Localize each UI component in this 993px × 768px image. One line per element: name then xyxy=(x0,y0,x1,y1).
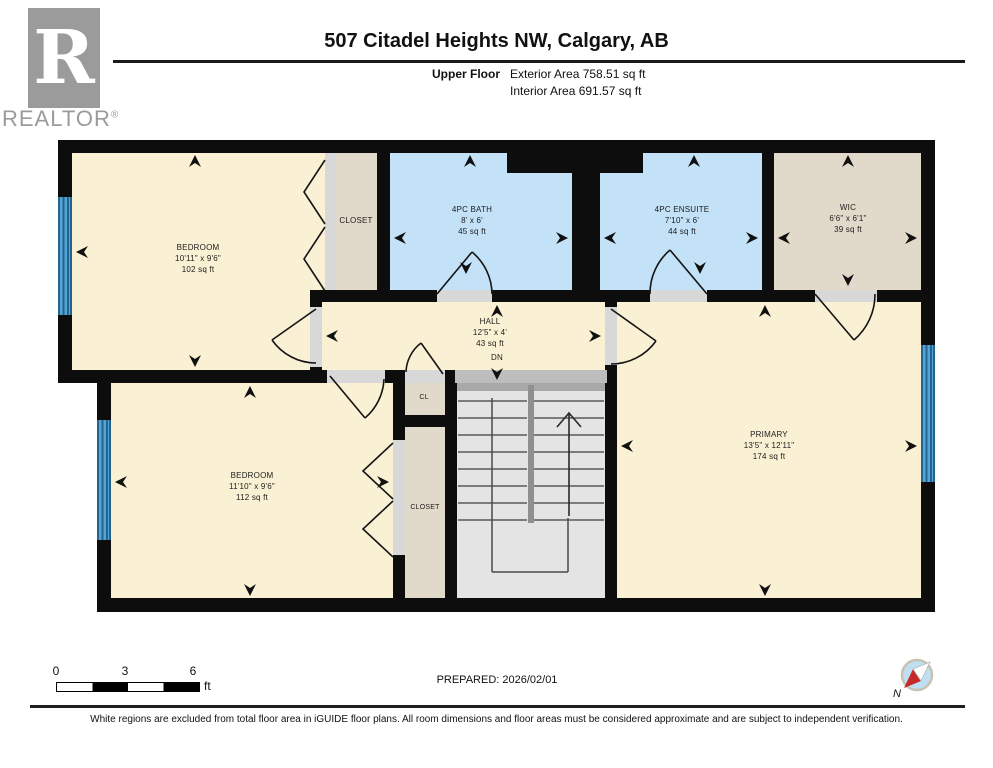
stair-edge-strip xyxy=(457,383,605,391)
room-label-wic: WIC 6'6" x 6'1" 39 sq ft xyxy=(788,202,908,235)
floor-label: Upper Floor xyxy=(330,67,500,81)
room-name: BEDROOM xyxy=(192,470,312,481)
scale-unit: ft xyxy=(204,679,211,693)
room-name: CL xyxy=(404,392,444,403)
room-name: 4PC ENSUITE xyxy=(622,204,742,215)
room-dims: 6'6" x 6'1" xyxy=(788,213,908,224)
compass-icon xyxy=(899,657,935,693)
room-area: 112 sq ft xyxy=(192,492,312,503)
room-label-ensuite: 4PC ENSUITE 7'10" x 6' 44 sq ft xyxy=(622,204,742,237)
room-area: 102 sq ft xyxy=(138,264,258,275)
exterior-area: Exterior Area 758.51 sq ft xyxy=(510,67,645,81)
realtor-logo: R xyxy=(28,8,100,108)
room-label-closet-2: CLOSET xyxy=(385,502,465,513)
room-name: PRIMARY xyxy=(709,429,829,440)
bedroom2-door-opening xyxy=(327,370,385,383)
stairs-opening xyxy=(455,370,607,383)
dn-text: DN xyxy=(477,352,517,363)
scale-bar xyxy=(56,682,200,692)
window-bedroom-1 xyxy=(58,197,72,315)
room-name: BEDROOM xyxy=(138,242,258,253)
room-label-bedroom-1: BEDROOM 10'11" x 9'6" 102 sq ft xyxy=(138,242,258,275)
room-dims: 12'5" x 4' xyxy=(430,327,550,338)
room-dims: 7'10" x 6' xyxy=(622,215,742,226)
realtor-wordmark-text: REALTOR xyxy=(2,106,111,131)
room-label-hall: HALL 12'5" x 4' 43 sq ft xyxy=(430,316,550,349)
room-area: 44 sq ft xyxy=(622,226,742,237)
floor-plan-page: R REALTOR® 507 Citadel Heights NW, Calga… xyxy=(0,0,993,768)
wall-stairs-left xyxy=(445,383,457,598)
scale-tick-6: 6 xyxy=(186,664,200,678)
scale-tick-0: 0 xyxy=(49,664,63,678)
room-label-bath: 4PC BATH 8' x 6' 45 sq ft xyxy=(412,204,532,237)
bath-door-opening xyxy=(437,290,492,302)
closet2-bifold-opening xyxy=(393,440,405,555)
room-dims: 10'11" x 9'6" xyxy=(138,253,258,264)
page-title: 507 Citadel Heights NW, Calgary, AB xyxy=(0,30,993,53)
room-dims: 13'5" x 12'11" xyxy=(709,440,829,451)
room-label-primary: PRIMARY 13'5" x 12'11" 174 sq ft xyxy=(709,429,829,462)
room-name: WIC xyxy=(788,202,908,213)
registered-mark: ® xyxy=(111,110,119,121)
ensuite-door-opening xyxy=(650,290,707,302)
interior-area: Interior Area 691.57 sq ft xyxy=(510,84,641,98)
scale-tick-3: 3 xyxy=(118,664,132,678)
stairs-dn-label: DN xyxy=(477,352,517,363)
title-rule xyxy=(113,60,965,63)
room-area: 45 sq ft xyxy=(412,226,532,237)
wall-top xyxy=(58,140,935,153)
wall-bath-ensuite xyxy=(572,153,600,290)
room-name: CLOSET xyxy=(316,215,396,226)
room-name: 4PC BATH xyxy=(412,204,532,215)
room-dims: 8' x 6' xyxy=(412,215,532,226)
wall-bottom xyxy=(97,598,935,612)
wall-ensuite-wic xyxy=(762,153,774,290)
room-name: HALL xyxy=(430,316,550,327)
room-label-closet-1: CLOSET xyxy=(316,215,396,226)
room-dims: 11'10" x 9'6" xyxy=(192,481,312,492)
room-area: 43 sq ft xyxy=(430,338,550,349)
footer-divider xyxy=(30,705,965,708)
room-label-cl: CL xyxy=(404,392,444,403)
bedroom1-door-opening xyxy=(310,307,322,367)
room-label-bedroom-2: BEDROOM 11'10" x 9'6" 112 sq ft xyxy=(192,470,312,503)
prepared-date: PREPARED: 2026/02/01 xyxy=(347,674,647,686)
cl-door-opening xyxy=(405,370,445,383)
stairwell xyxy=(457,383,605,598)
room-area: 39 sq ft xyxy=(788,224,908,235)
disclaimer-text: White regions are excluded from total fl… xyxy=(0,714,993,725)
room-name: CLOSET xyxy=(385,502,465,513)
realtor-wordmark: REALTOR® xyxy=(2,106,132,132)
room-area: 174 sq ft xyxy=(709,451,829,462)
window-bedroom-2 xyxy=(97,420,111,540)
primary-door-opening xyxy=(605,307,617,365)
wic-door-opening xyxy=(815,290,877,302)
window-primary xyxy=(921,345,935,482)
